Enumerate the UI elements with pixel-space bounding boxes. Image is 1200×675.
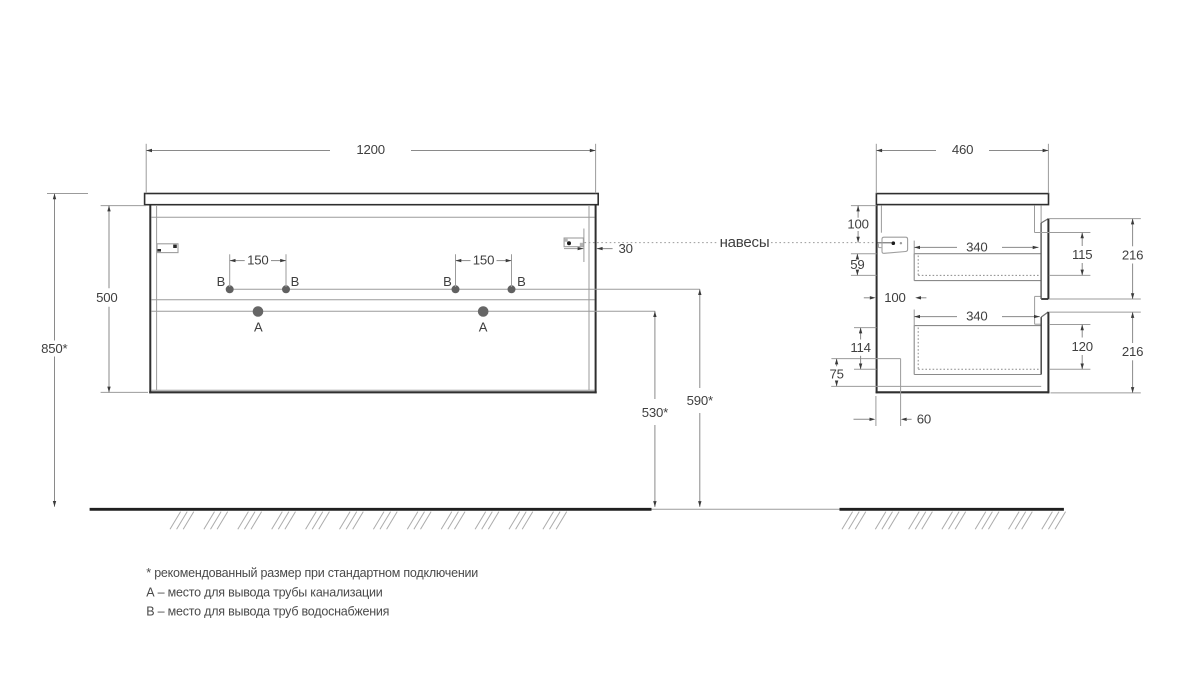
svg-text:850*: 850*: [41, 341, 67, 356]
svg-text:В: В: [443, 274, 451, 289]
svg-text:А: А: [479, 320, 488, 335]
svg-text:500: 500: [96, 290, 117, 305]
svg-text:460: 460: [952, 142, 973, 157]
svg-text:В – место для вывода труб водо: В – место для вывода труб водоснабжения: [146, 605, 389, 619]
svg-text:100: 100: [884, 290, 905, 305]
svg-text:В: В: [291, 274, 299, 289]
svg-text:120: 120: [1071, 339, 1092, 354]
svg-text:навесы: навесы: [720, 234, 770, 251]
svg-text:150: 150: [247, 253, 268, 268]
svg-text:30: 30: [618, 241, 632, 256]
svg-text:В: В: [517, 274, 525, 289]
svg-text:А: А: [254, 320, 263, 335]
svg-text:216: 216: [1122, 344, 1143, 359]
svg-text:59: 59: [850, 257, 864, 272]
svg-text:216: 216: [1122, 248, 1143, 263]
svg-text:530*: 530*: [642, 405, 668, 420]
svg-text:340: 340: [966, 309, 987, 324]
svg-text:60: 60: [917, 412, 931, 427]
svg-text:150: 150: [473, 253, 494, 268]
svg-text:340: 340: [966, 239, 987, 254]
svg-text:В: В: [217, 274, 225, 289]
svg-text:115: 115: [1072, 247, 1092, 262]
svg-text:1200: 1200: [356, 142, 385, 157]
svg-text:* рекомендованный размер при с: * рекомендованный размер при стандартном…: [146, 566, 478, 580]
svg-text:75: 75: [829, 367, 843, 382]
svg-text:100: 100: [847, 217, 868, 232]
svg-text:А – место для вывода трубы кан: А – место для вывода трубы канализации: [146, 585, 382, 599]
svg-text:114: 114: [850, 340, 870, 355]
svg-text:590*: 590*: [687, 393, 713, 408]
